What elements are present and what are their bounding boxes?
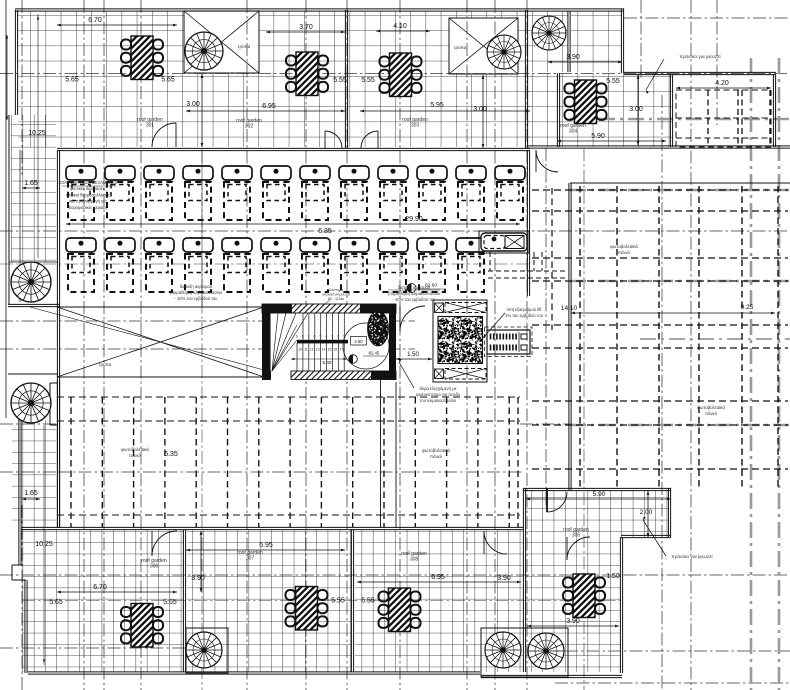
svg-text:5: 5 — [319, 335, 321, 339]
svg-text:πάνελ: πάνελ — [129, 452, 142, 458]
svg-text:2: 2 — [337, 335, 339, 339]
svg-text:1.65: 1.65 — [24, 490, 38, 497]
svg-text:3.00: 3.00 — [473, 106, 487, 113]
svg-text:10.25: 10.25 — [28, 130, 46, 137]
svg-text:5.65: 5.65 — [65, 77, 79, 84]
svg-text:οπή εξαερισμού lift: οπή εξαερισμού lift — [507, 307, 543, 312]
svg-text:8: 8 — [302, 335, 304, 339]
svg-text:307: 307 — [246, 556, 255, 562]
svg-text:5.95: 5.95 — [430, 102, 444, 109]
svg-text:τρύπα: τρύπα — [99, 361, 112, 367]
svg-text:5.40: 5.40 — [323, 360, 332, 365]
svg-text:(παράθυρα) κλιμακοστασίου: (παράθυρα) κλιμακοστασίου — [170, 290, 223, 295]
svg-text:4: 4 — [325, 335, 327, 339]
svg-text:θύρα ελεγχόμενη με: θύρα ελεγχόμενη με — [419, 386, 456, 391]
svg-text:(παράθυρα) κλιμακοστασίου: (παράθυρα) κλιμακοστασίου — [388, 291, 441, 296]
svg-text:3.90: 3.90 — [191, 575, 205, 582]
svg-text:6.70: 6.70 — [93, 584, 107, 591]
svg-text:του κλιμακοστασίου: του κλιμακοστασίου — [420, 398, 457, 403]
svg-text:δορυφορικές κεραίες: δορυφορικές κεραίες — [69, 205, 107, 210]
svg-text:9.25: 9.25 — [741, 304, 754, 311]
svg-text:τρύπα: τρύπα — [454, 44, 467, 50]
svg-text:φωτοκύτταρα για άνοδο: φωτοκύτταρα για άνοδο — [416, 392, 461, 397]
svg-text:6.95: 6.95 — [431, 574, 445, 581]
svg-text:13: 13 — [316, 348, 320, 352]
svg-text:29.90: 29.90 — [405, 216, 423, 223]
svg-text:304: 304 — [569, 129, 578, 135]
svg-text:ΚΟΛΥΜΒΗΤΙΚΕΣ ΔΕΞΑΜΕΝΕΣ: ΚΟΛΥΜΒΗΤΙΚΕΣ ΔΕΞΑΜΕΝΕΣ — [58, 180, 117, 185]
svg-text:3: 3 — [331, 335, 333, 339]
svg-text:5.65: 5.65 — [161, 77, 175, 84]
svg-text:3.70: 3.70 — [299, 24, 313, 31]
svg-text:16: 16 — [334, 348, 338, 352]
svg-text:308: 308 — [410, 557, 419, 563]
svg-text:6: 6 — [314, 335, 316, 339]
svg-text:φωτοβολταϊκά: φωτοβολταϊκά — [697, 404, 725, 410]
svg-text:5.55: 5.55 — [606, 78, 620, 85]
svg-text:1.50: 1.50 — [606, 573, 620, 580]
svg-text:5.90: 5.90 — [593, 491, 606, 498]
svg-text:5.55: 5.55 — [361, 77, 375, 84]
svg-text:6.95: 6.95 — [259, 542, 273, 549]
svg-text:301: 301 — [146, 123, 155, 129]
svg-text:πάνελ: πάνελ — [705, 410, 718, 416]
svg-text:7: 7 — [308, 335, 310, 339]
svg-text:3.90: 3.90 — [566, 618, 580, 625]
svg-text:διάταξη αερισμού: διάταξη αερισμού — [398, 285, 431, 290]
svg-text:11: 11 — [304, 348, 308, 352]
svg-text:φωτοβολταϊκά: φωτοβολταϊκά — [422, 447, 450, 453]
svg-text:τρύπα: τρύπα — [238, 43, 251, 49]
svg-text:1: 1 — [343, 335, 345, 339]
svg-text:5.55: 5.55 — [361, 598, 375, 605]
svg-text:4.10: 4.10 — [393, 23, 407, 30]
svg-text:4.20: 4.20 — [715, 80, 729, 87]
svg-text:πάνελ: πάνελ — [430, 453, 443, 459]
svg-text:3.90: 3.90 — [497, 575, 511, 582]
svg-text:- 10% του εμβαδού του: - 10% του εμβαδού του — [393, 297, 437, 302]
svg-text:302: 302 — [245, 124, 254, 130]
svg-text:1.65: 1.65 — [24, 180, 38, 187]
svg-text:80 - 110εκ: 80 - 110εκ — [328, 297, 345, 301]
svg-text:6.35: 6.35 — [164, 451, 178, 458]
svg-text:5.55: 5.55 — [333, 77, 347, 84]
svg-text:15: 15 — [328, 348, 332, 352]
svg-text:9: 9 — [296, 335, 298, 339]
svg-text:305: 305 — [572, 533, 581, 539]
svg-text:5.65: 5.65 — [163, 599, 177, 606]
svg-text:306: 306 — [150, 564, 159, 570]
svg-text:φωτοβολταϊκά: φωτοβολταϊκά — [121, 446, 149, 452]
svg-text:ηλιακοί θερμοσυλλέκτες: ηλιακοί θερμοσυλλέκτες — [66, 192, 110, 197]
svg-text:και προσαρμογή α/c: και προσαρμογή α/c — [69, 199, 107, 204]
svg-text:6.35: 6.35 — [318, 228, 332, 235]
svg-text:1.50: 1.50 — [407, 352, 419, 358]
svg-text:- 10% του εμβαδού του: - 10% του εμβαδού του — [175, 296, 219, 301]
svg-text:3.90: 3.90 — [566, 54, 580, 61]
svg-text:πάνελ: πάνελ — [618, 249, 631, 255]
svg-text:303: 303 — [411, 123, 420, 129]
svg-text:υποκαπνισμού lift: υποκαπνισμού lift — [322, 292, 350, 296]
svg-text:6.70: 6.70 — [88, 17, 102, 24]
svg-text:1% του εμβαδού του: 1% του εμβαδού του — [505, 313, 544, 318]
svg-text:3.00: 3.00 — [629, 106, 643, 113]
svg-text:17: 17 — [339, 348, 343, 352]
svg-text:πρόνοια για jacuzzi: πρόνοια για jacuzzi — [679, 53, 720, 60]
svg-text:5.55: 5.55 — [331, 598, 345, 605]
svg-text:5.65: 5.65 — [49, 599, 63, 606]
svg-text:2.00: 2.00 — [640, 509, 653, 516]
svg-text:φωτοβολταϊκά: φωτοβολταϊκά — [610, 243, 638, 249]
svg-text:3.00: 3.00 — [186, 101, 200, 108]
svg-text:14.10: 14.10 — [561, 305, 578, 312]
svg-text:πρόνοια για jacuzzi: πρόνοια για jacuzzi — [671, 553, 712, 560]
svg-text:φυσικές διαστάσεις: φυσικές διαστάσεις — [70, 186, 105, 191]
svg-text:5.90: 5.90 — [591, 133, 605, 140]
svg-text:14: 14 — [322, 348, 326, 352]
svg-text:2.60: 2.60 — [354, 339, 363, 344]
svg-text:10: 10 — [298, 348, 302, 352]
svg-text:82.45: 82.45 — [369, 351, 381, 356]
svg-text:Σύστημα: Σύστημα — [329, 288, 343, 292]
svg-text:12: 12 — [310, 348, 314, 352]
svg-text:6.95: 6.95 — [262, 103, 276, 110]
svg-text:διάταξη αερισμού: διάταξη αερισμού — [180, 284, 213, 289]
